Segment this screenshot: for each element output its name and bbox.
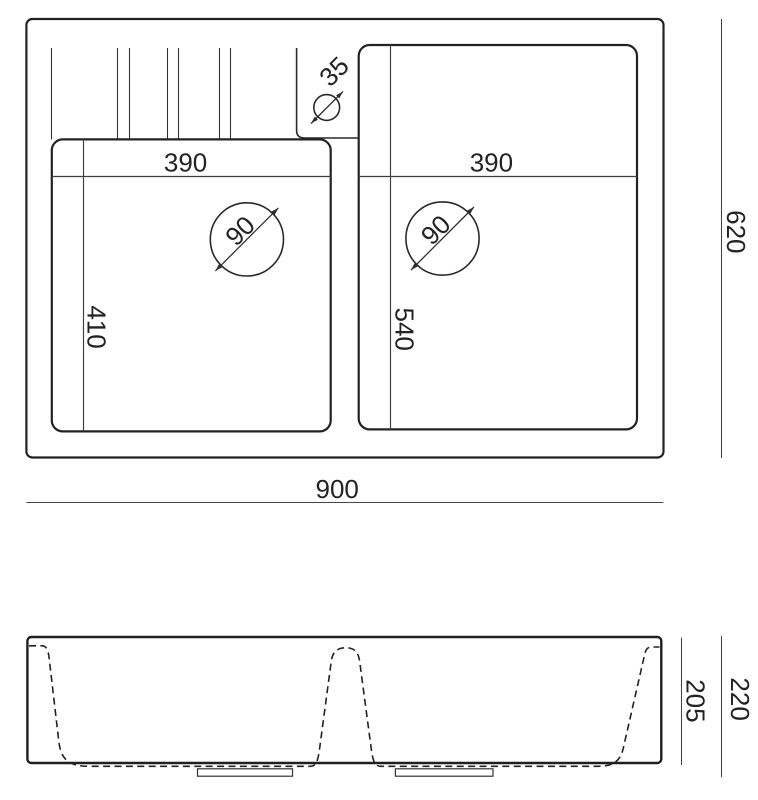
svg-text:390: 390 xyxy=(164,148,207,178)
svg-text:205: 205 xyxy=(680,679,710,722)
svg-text:620: 620 xyxy=(721,210,751,253)
svg-text:220: 220 xyxy=(725,677,755,720)
svg-text:410: 410 xyxy=(81,305,111,348)
svg-text:900: 900 xyxy=(316,474,359,504)
svg-text:390: 390 xyxy=(470,148,513,178)
svg-text:540: 540 xyxy=(390,308,420,351)
